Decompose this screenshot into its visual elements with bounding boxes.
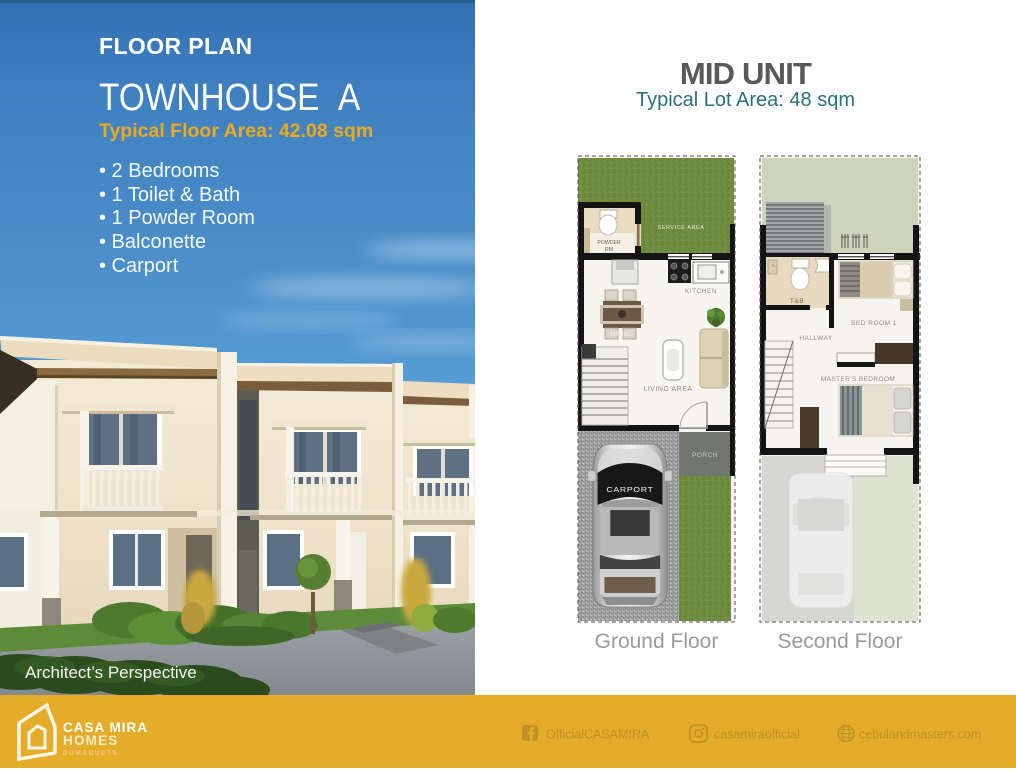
svg-text:casamiraofficial: casamiraofficial [714, 728, 800, 742]
svg-text:PORCH: PORCH [692, 452, 718, 459]
svg-text:DINING: DINING [611, 331, 634, 338]
svg-text:HOMES: HOMES [63, 733, 119, 748]
svg-text:HALLWAY: HALLWAY [799, 335, 833, 342]
svg-text:MASTER'S BEDROOM: MASTER'S BEDROOM [821, 376, 895, 383]
svg-text:OfficialCASAMIRA: OfficialCASAMIRA [546, 728, 650, 742]
svg-text:KITCHEN: KITCHEN [685, 288, 717, 295]
svg-text:POWDER: POWDER [597, 240, 621, 246]
svg-text:T&B: T&B [790, 298, 804, 305]
svg-text:BED ROOM 1: BED ROOM 1 [851, 320, 897, 327]
svg-text:RM: RM [605, 247, 613, 253]
svg-text:SERVICE AREA: SERVICE AREA [658, 225, 705, 231]
svg-text:DUMAGUETE: DUMAGUETE [63, 750, 118, 757]
svg-text:CARPORT: CARPORT [606, 486, 653, 494]
svg-text:S: S [772, 263, 775, 268]
svg-text:LIVING AREA: LIVING AREA [643, 386, 692, 393]
svg-text:cebulandmasters.com: cebulandmasters.com [859, 728, 981, 742]
